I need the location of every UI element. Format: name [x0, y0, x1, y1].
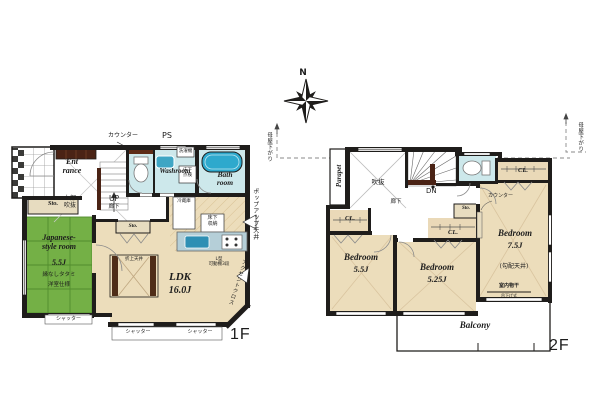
drying-rod-sublabel: 吊下げ式 — [486, 294, 532, 298]
room-size-japanese: 5.5J — [26, 259, 92, 268]
coffered-ceiling-label: 折上天井 — [110, 257, 158, 262]
counter-label-2f: カウンター — [488, 194, 528, 200]
room-size-bedroom-525: 5.25J — [398, 275, 476, 285]
hallway-label-2f: 廊下 — [384, 199, 408, 205]
floor-label-2f: 2F — [549, 337, 570, 355]
popup-ceiling-label: ポップアップ天井 — [251, 188, 258, 240]
shutter-label-1: シャッター — [45, 317, 92, 323]
floor-storage-label: 床下 収納 — [201, 216, 224, 227]
compass-rose-icon — [284, 79, 328, 123]
f1-kitchen-counter — [177, 232, 247, 251]
room-label-japanese: Japanese- style room — [26, 234, 92, 252]
hallway-label-1f: 廊下 — [103, 204, 125, 210]
japanese-note-2: 洋室仕様 — [26, 282, 92, 288]
closet-label-left: CL. — [330, 215, 370, 222]
storage-label-1f-b: Sto. — [116, 223, 150, 229]
floor-label-1f: 1F — [230, 326, 251, 344]
shelf-label: L型 可動棚3段 — [198, 257, 240, 267]
parapet-label: Parapet — [336, 148, 344, 204]
room-label-bedroom-525: Bedroom — [398, 262, 476, 272]
underfloor-check-label: 床下 点検 — [179, 168, 196, 178]
japanese-note-1: 縁なしタタミ — [26, 272, 92, 278]
balcony-label: Balcony — [430, 320, 520, 330]
f1-bathtub — [202, 152, 242, 172]
room-label-bedroom-75: Bedroom — [480, 228, 550, 238]
floor-plan-drawing — [0, 0, 600, 420]
shutter-label-2: シャッター — [116, 330, 160, 336]
slope-ceiling-note: (勾配天井) — [478, 264, 550, 271]
compass-north-label: N — [295, 68, 311, 78]
closet-label-mid: CL. — [428, 229, 478, 236]
roof-note-left: 母屋下がり — [266, 132, 272, 162]
room-label-entrance: Ent rance — [52, 158, 92, 176]
washer-label: 洗濯機 — [177, 149, 194, 154]
roof-note-right: 母屋下がり — [577, 122, 583, 152]
f2-stairs — [408, 150, 456, 189]
counter-label-1f: カウンター — [108, 133, 154, 140]
void-label-2f: 吹抜 — [363, 179, 393, 186]
up-label: UP — [105, 195, 123, 203]
drying-rod-label: 室内物干 — [486, 284, 532, 290]
shutter-label-3: シャッター — [178, 330, 222, 336]
roof-slope-arrows — [275, 114, 568, 134]
room-label-bedroom-55: Bedroom — [325, 252, 397, 262]
ps-label: PS — [162, 132, 182, 141]
room-size-bedroom-75: 7.5J — [480, 241, 550, 251]
room-size-bedroom-55: 5.5J — [325, 265, 397, 275]
f1-toilet-fixture — [134, 157, 148, 182]
f2-toilet-fixture — [463, 161, 490, 175]
room-label-ldk: LDK — [150, 271, 210, 283]
floor-plan-canvas: N 母屋下がり 母屋下がり カウンター PS 洗濯機 Washroom 床下 点… — [0, 0, 600, 420]
room-label-bathroom: Bath room — [205, 171, 245, 188]
storage-label-2f: Sto. — [454, 206, 478, 212]
upper-void-label: 上部 吹抜 — [64, 196, 90, 209]
dn-label: DN — [426, 188, 446, 196]
room-size-ldk: 16.0J — [150, 285, 210, 296]
closet-label-topright: CL. — [498, 167, 548, 174]
fridge-label: 冷蔵庫 — [173, 199, 195, 204]
